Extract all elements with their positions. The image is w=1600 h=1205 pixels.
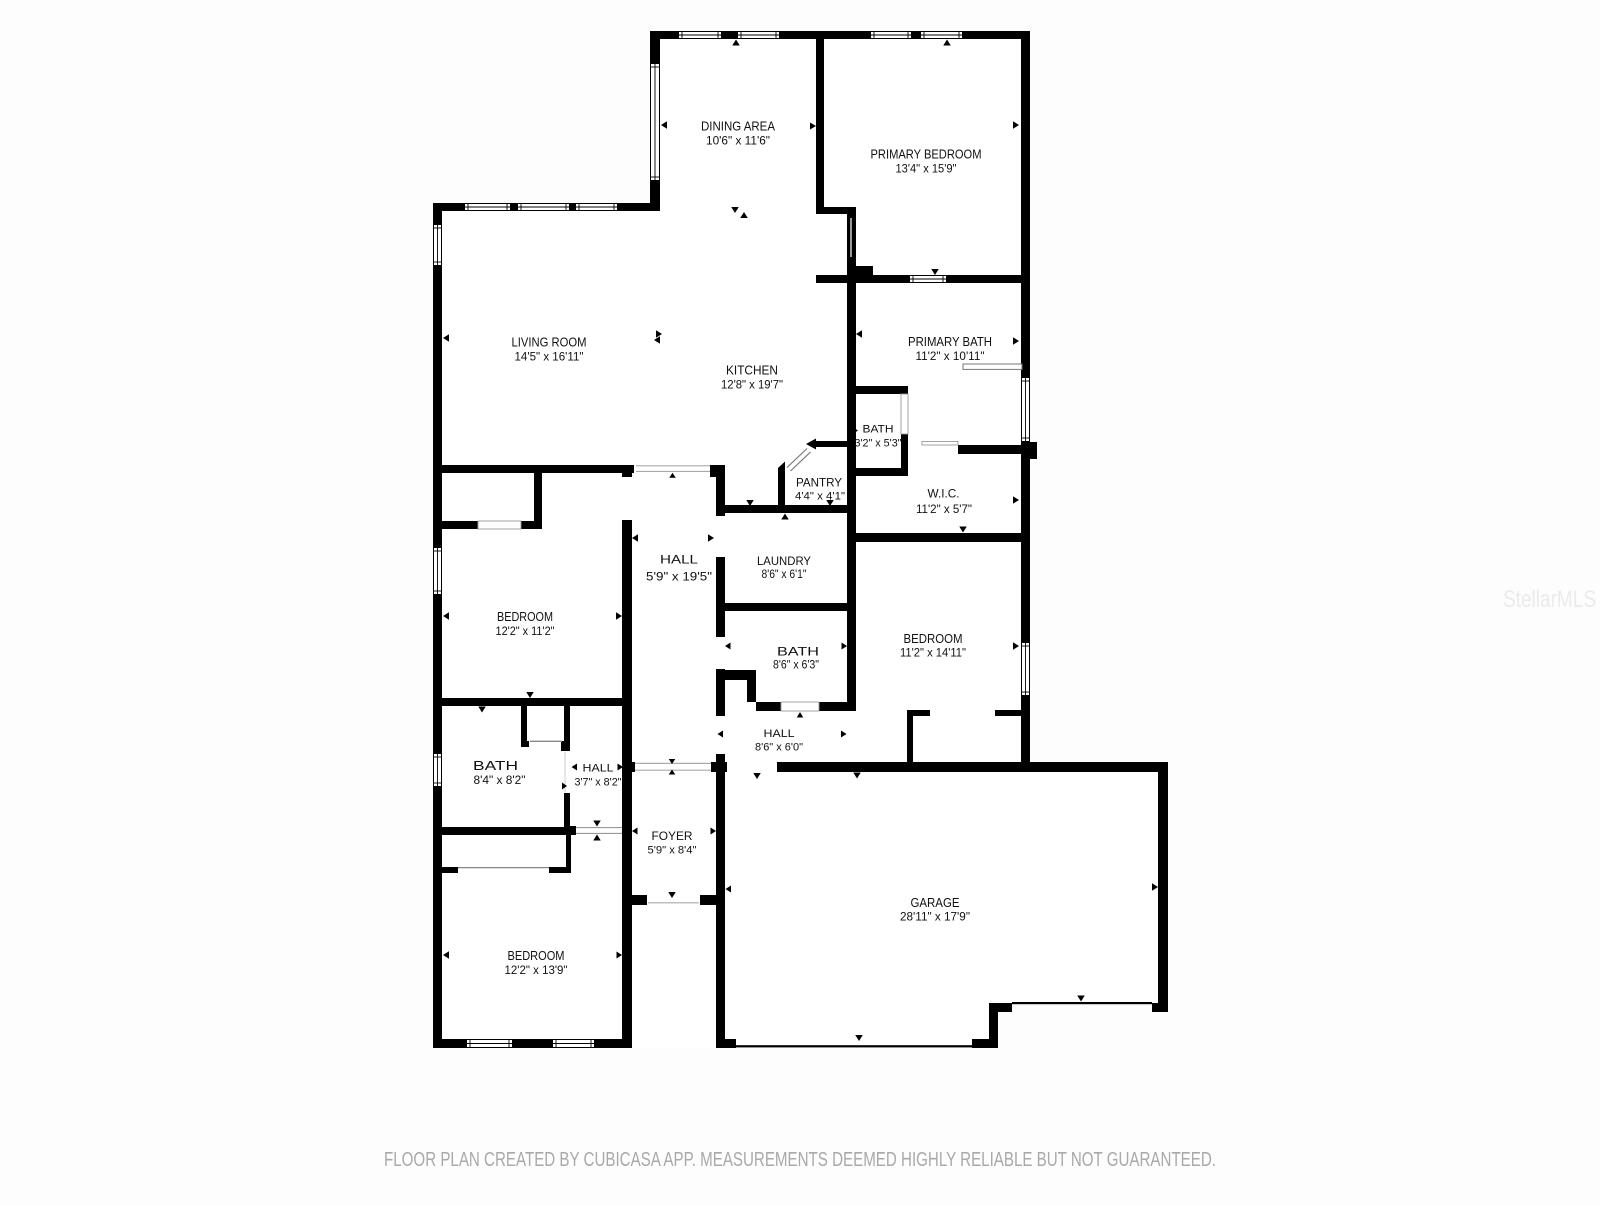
svg-text:3'7" x 8'2": 3'7" x 8'2" bbox=[575, 777, 622, 789]
svg-text:FOYER: FOYER bbox=[652, 831, 693, 843]
svg-text:11'2" x 14'11": 11'2" x 14'11" bbox=[900, 646, 966, 660]
svg-text:13'4" x 15'9": 13'4" x 15'9" bbox=[896, 162, 957, 176]
svg-text:5'9" x 19'5": 5'9" x 19'5" bbox=[646, 570, 712, 584]
svg-text:11'2" x 10'11": 11'2" x 10'11" bbox=[916, 349, 985, 363]
svg-text:LIVING ROOM: LIVING ROOM bbox=[512, 336, 587, 350]
svg-text:10'6" x 11'6": 10'6" x 11'6" bbox=[706, 134, 770, 148]
svg-text:12'2" x 11'2": 12'2" x 11'2" bbox=[496, 624, 555, 638]
svg-text:BATH: BATH bbox=[473, 759, 518, 773]
svg-text:8'6" x 6'3": 8'6" x 6'3" bbox=[773, 660, 819, 672]
svg-text:PRIMARY BATH: PRIMARY BATH bbox=[908, 335, 992, 349]
svg-text:HALL: HALL bbox=[660, 553, 698, 567]
svg-text:GARAGE: GARAGE bbox=[911, 896, 960, 910]
svg-text:KITCHEN: KITCHEN bbox=[726, 364, 778, 378]
svg-text:8'4" x 8'2": 8'4" x 8'2" bbox=[474, 773, 526, 787]
svg-text:DINING AREA: DINING AREA bbox=[701, 120, 776, 134]
svg-text:PANTRY: PANTRY bbox=[796, 478, 842, 490]
svg-text:HALL: HALL bbox=[583, 763, 614, 775]
svg-text:BEDROOM: BEDROOM bbox=[904, 632, 963, 646]
svg-text:BATH: BATH bbox=[777, 645, 819, 659]
svg-text:28'11" x 17'9": 28'11" x 17'9" bbox=[900, 910, 970, 924]
svg-text:8'6" x 6'1": 8'6" x 6'1" bbox=[762, 569, 807, 581]
svg-text:BEDROOM: BEDROOM bbox=[508, 949, 565, 963]
svg-text:StellarMLS: StellarMLS bbox=[1503, 586, 1596, 613]
svg-text:W.I.C.: W.I.C. bbox=[928, 489, 960, 501]
svg-text:4'4" x 4'1": 4'4" x 4'1" bbox=[795, 491, 845, 503]
svg-text:BATH: BATH bbox=[863, 424, 894, 436]
svg-text:FLOOR PLAN CREATED BY CUBICASA: FLOOR PLAN CREATED BY CUBICASA APP. MEAS… bbox=[384, 1149, 1216, 1171]
svg-text:BEDROOM: BEDROOM bbox=[497, 610, 553, 624]
svg-text:12'2" x 13'9": 12'2" x 13'9" bbox=[505, 963, 568, 977]
svg-text:3'2" x 5'3": 3'2" x 5'3" bbox=[855, 438, 902, 450]
svg-text:12'8" x 19'7": 12'8" x 19'7" bbox=[721, 378, 783, 392]
svg-text:8'6" x 6'0": 8'6" x 6'0" bbox=[755, 742, 803, 754]
svg-text:LAUNDRY: LAUNDRY bbox=[757, 554, 811, 568]
svg-text:PRIMARY BEDROOM: PRIMARY BEDROOM bbox=[871, 148, 982, 162]
svg-text:14'5" x 16'11": 14'5" x 16'11" bbox=[515, 350, 584, 364]
svg-text:11'2" x 5'7": 11'2" x 5'7" bbox=[916, 504, 972, 516]
svg-text:5'9" x 8'4": 5'9" x 8'4" bbox=[648, 845, 697, 857]
svg-text:HALL: HALL bbox=[764, 728, 795, 740]
